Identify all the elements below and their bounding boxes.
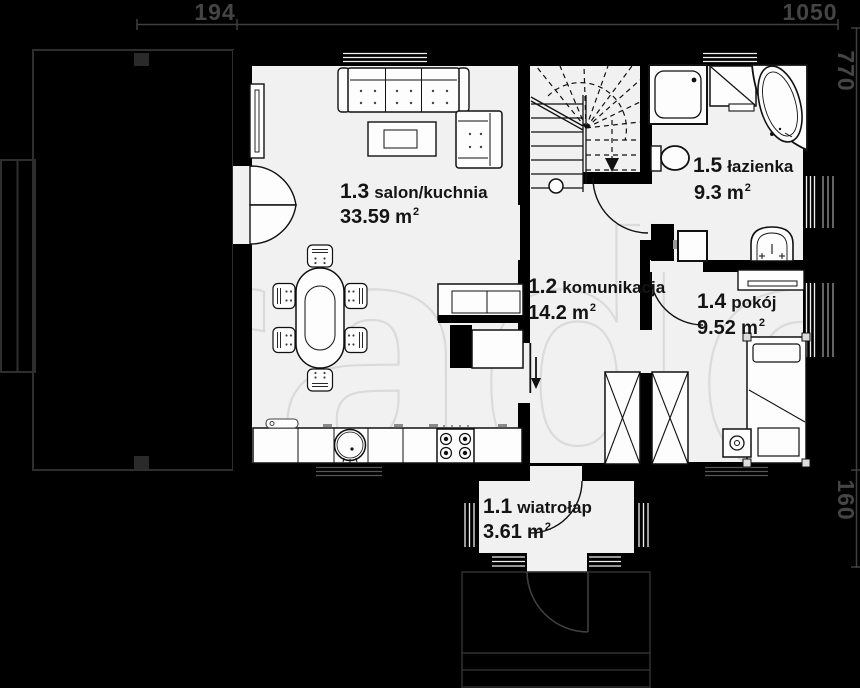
label-wiatrolap-area: 3.61m2 xyxy=(483,522,551,542)
dim-770: 770 xyxy=(833,46,857,96)
carport-post-top xyxy=(134,53,149,66)
shower xyxy=(649,65,707,124)
sink-basin xyxy=(751,227,793,261)
room-area-unit: m xyxy=(527,522,544,543)
room-name: komunikacja xyxy=(562,278,665,297)
room-area: 9.3 xyxy=(694,182,722,204)
dim-194: 194 xyxy=(180,1,250,24)
room-name: wiatrołap xyxy=(517,498,592,517)
room-area-exp: 2 xyxy=(759,317,765,329)
armchair xyxy=(456,111,502,168)
stove xyxy=(437,425,474,463)
room-name: łazienka xyxy=(727,157,793,176)
room-area-unit: m xyxy=(741,318,758,339)
room-area-exp: 2 xyxy=(745,182,751,194)
label-salon: 1.3salon/kuchnia xyxy=(340,181,488,202)
bed xyxy=(743,333,810,467)
label-wiatrolap: 1.1wiatrołap xyxy=(483,496,592,517)
dim-160: 160 xyxy=(833,475,857,525)
room-area-unit: m xyxy=(727,183,744,204)
room-area: 3.61 xyxy=(483,521,522,543)
carport-post-bottom xyxy=(134,456,149,469)
wardrobe-komunikacja xyxy=(605,372,640,464)
radiator xyxy=(250,84,264,158)
room-area-unit: m xyxy=(395,207,412,228)
room-area: 14.2 xyxy=(528,302,567,324)
room-name: pokój xyxy=(731,293,776,312)
sofa xyxy=(338,68,469,112)
label-komunikacja: 1.2komunikacja xyxy=(528,276,665,297)
label-pokoj: 1.4pokój xyxy=(697,291,777,312)
washbasin-cabinet xyxy=(710,66,756,111)
stair-newel xyxy=(549,179,563,193)
room-area: 33.59 xyxy=(340,206,390,228)
room-area-exp: 2 xyxy=(545,521,551,533)
desk xyxy=(738,270,804,290)
label-komunikacja-area: 14.2m2 xyxy=(528,303,596,323)
toilet xyxy=(651,146,689,171)
room-name: salon/kuchnia xyxy=(374,183,487,202)
coffee-table xyxy=(368,122,436,156)
dim-1050: 1050 xyxy=(770,1,850,24)
label-lazienka-area: 9.3m2 xyxy=(694,183,751,203)
floor-plan: radom xyxy=(0,0,860,688)
room-number: 1.1 xyxy=(483,495,512,518)
room-number: 1.5 xyxy=(693,154,722,177)
nightstand xyxy=(723,429,751,457)
label-lazienka: 1.5łazienka xyxy=(693,155,793,176)
room-area-exp: 2 xyxy=(590,302,596,314)
label-salon-area: 33.59m2 xyxy=(340,207,419,227)
room-area-exp: 2 xyxy=(413,206,419,218)
washing-machine xyxy=(678,231,707,261)
room-number: 1.4 xyxy=(697,290,726,313)
room-number: 1.2 xyxy=(528,275,557,298)
counter-board xyxy=(266,419,298,428)
label-pokoj-area: 9.52m2 xyxy=(697,318,765,338)
wardrobe-pokoj xyxy=(652,372,688,464)
room-number: 1.3 xyxy=(340,180,369,203)
duct xyxy=(651,224,674,261)
floor-plan-drawing: radom xyxy=(0,0,860,688)
room-area-unit: m xyxy=(572,303,589,324)
room-area: 9.52 xyxy=(697,317,736,339)
